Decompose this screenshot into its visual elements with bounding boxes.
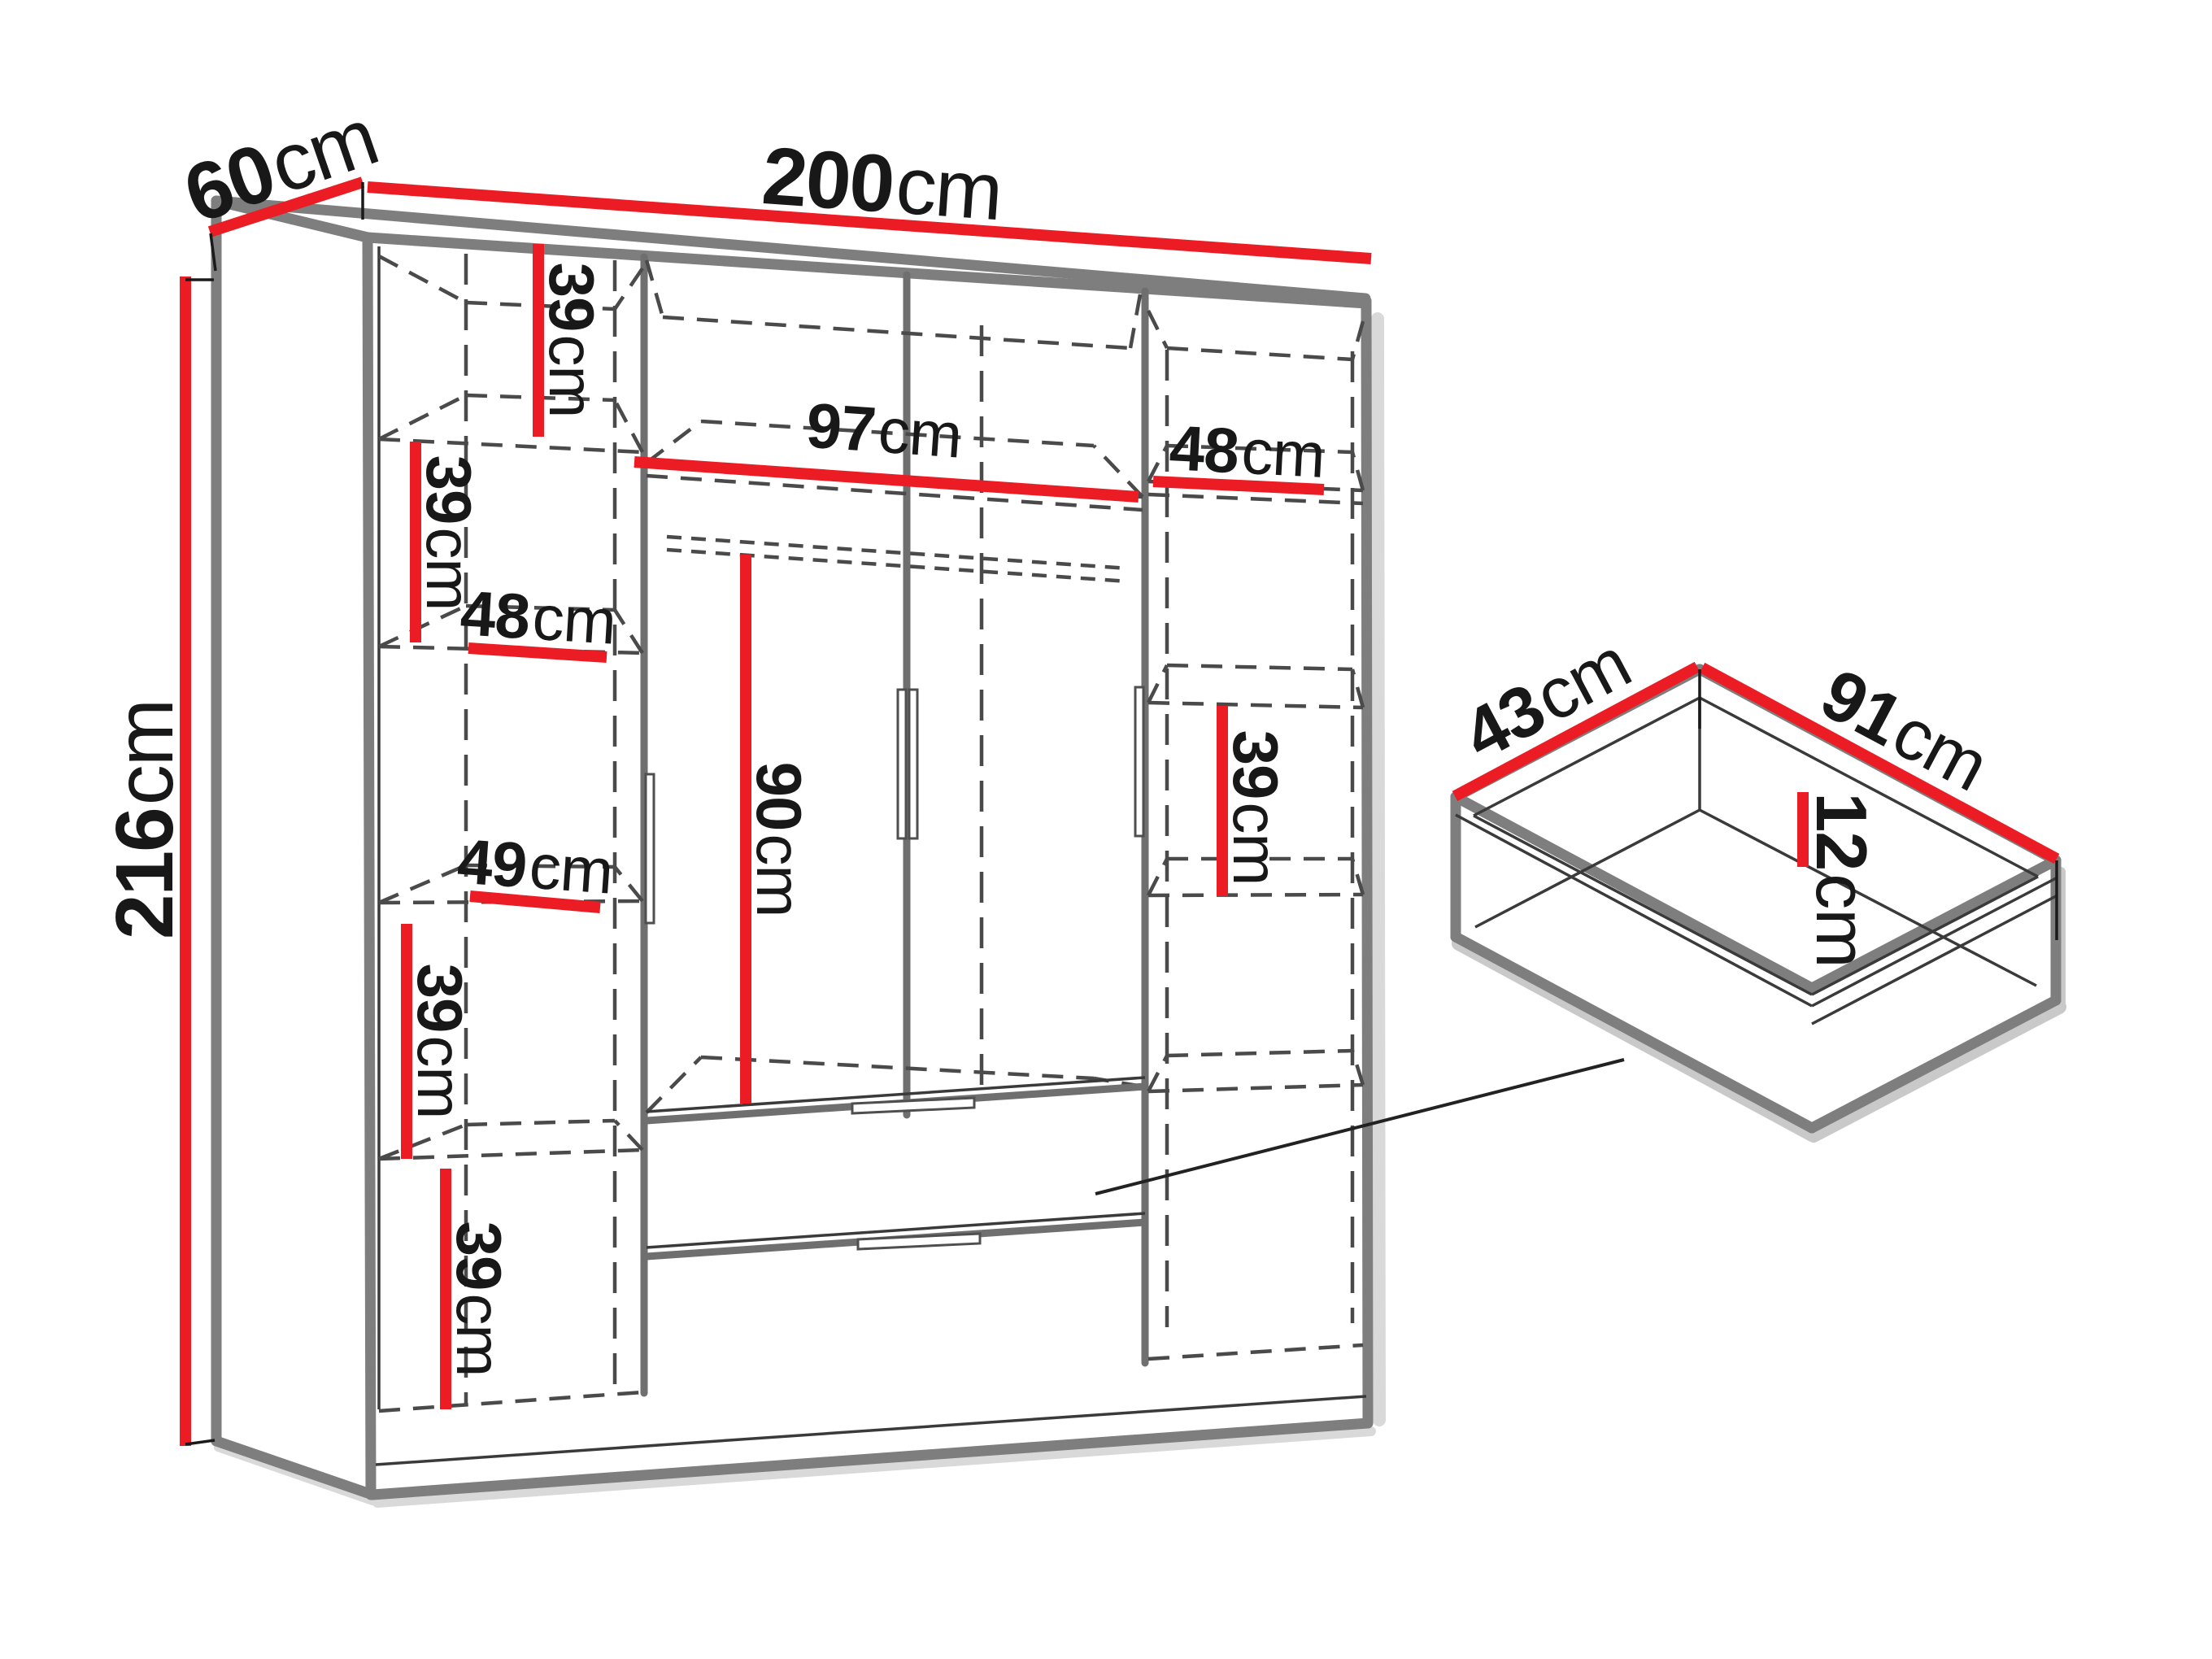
door-handle xyxy=(898,690,906,838)
hanging-rod xyxy=(667,537,1129,581)
label-shelf-39-right: 39cm xyxy=(1220,730,1291,886)
center-interior xyxy=(647,260,1143,1113)
diagram-canvas: 60cm 200cm 216cm 39cm 39cm 48cm 49cm 39c… xyxy=(0,0,2212,1659)
door-handles xyxy=(646,687,1143,923)
drawer1-handle xyxy=(852,1098,974,1113)
label-shelf-39-lower-left: 39cm xyxy=(404,964,476,1119)
label-shelf-39-bottom-left: 39cm xyxy=(443,1221,515,1377)
drawer-bottom-right-edge xyxy=(1812,1000,2056,1128)
label-shelf-49-left: 49cm xyxy=(455,825,615,908)
wardrobe-side-shadow xyxy=(218,1448,372,1501)
label-height-216: 216cm xyxy=(99,700,190,939)
door-handle xyxy=(1135,687,1143,836)
door-handle xyxy=(909,690,917,838)
drawer-shadow xyxy=(1459,943,2059,1135)
label-width-200: 200cm xyxy=(760,130,1004,237)
wardrobe-base-shadow xyxy=(377,1431,1371,1503)
label-hanging-90: 90cm xyxy=(743,762,815,917)
label-shelf-48-right: 48cm xyxy=(1168,411,1326,491)
label-shelf-48-left: 48cm xyxy=(459,577,618,657)
drawer2-handle xyxy=(858,1234,980,1249)
wardrobe-right-shadow xyxy=(1378,319,1379,1420)
right-edge xyxy=(1366,301,1368,1423)
wardrobe-drawers xyxy=(647,1078,1145,1256)
label-drawer-12: 12cm xyxy=(1801,792,1882,967)
label-shelf-39-top-left: 39cm xyxy=(536,263,607,418)
furniture-dimension-diagram: 60cm 200cm 216cm 39cm 39cm 48cm 49cm 39c… xyxy=(0,0,2212,1659)
label-hanging-97: 97cm xyxy=(804,390,964,472)
door-handle xyxy=(646,774,654,923)
side-bottom-edge xyxy=(216,1441,372,1495)
front-left-edge xyxy=(368,237,371,1495)
drawer-front-left-rim xyxy=(1456,797,1812,988)
base-front-edge xyxy=(372,1423,1368,1495)
